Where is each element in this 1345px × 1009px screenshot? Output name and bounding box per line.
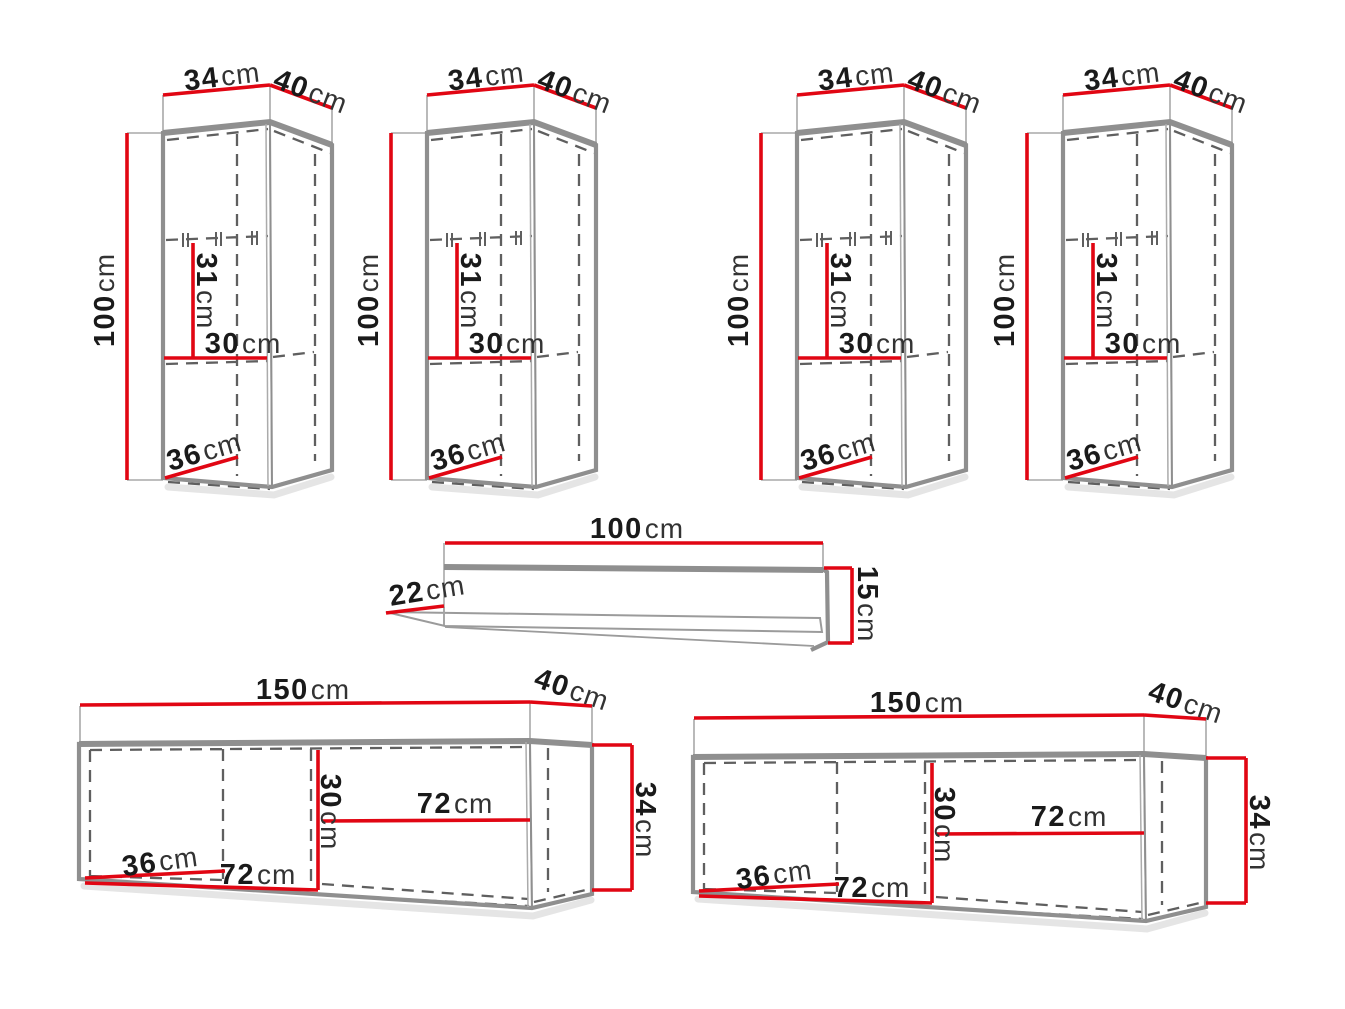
cabinet-side-face: [904, 122, 966, 487]
tall-cabinet-2: 34cm 40cm 100cm 31cm 30cm 36cm: [353, 56, 616, 495]
furniture-dimensions-diagram: 34cm 40cm 100cm 31cm 30cm 36cm 34cm 40cm…: [0, 0, 1345, 1009]
shelf-spacing-label: 31cm: [190, 253, 222, 330]
depth-label: 40cm: [533, 63, 616, 120]
extension-lines: [80, 703, 592, 744]
inner-width-right-dimension-line: [322, 820, 530, 821]
depth-label: 40cm: [1144, 675, 1227, 730]
height-label: 34cm: [1243, 795, 1275, 872]
height-label: 100cm: [989, 253, 1021, 347]
cabinet-side-face: [1144, 754, 1206, 921]
extension-lines: [444, 543, 823, 620]
shelf-top-edge: [444, 567, 823, 570]
wall-shelf: 100cm 22cm 15cm: [386, 513, 883, 650]
cabinet-side-face: [270, 122, 332, 487]
width-label: 34cm: [1082, 56, 1162, 97]
height-label: 100cm: [353, 253, 385, 347]
inner-width-label: 30cm: [205, 328, 282, 360]
inner-width-right-label: 72cm: [1031, 801, 1108, 833]
width-label: 34cm: [816, 56, 896, 97]
tall-cabinet-3: 34cm 40cm 100cm 31cm 30cm 36cm: [723, 56, 986, 495]
cabinet-side-face: [534, 122, 596, 487]
inner-width-bottom-label: 72cm: [834, 872, 911, 904]
height-label: 34cm: [629, 782, 661, 859]
width-label: 34cm: [182, 56, 262, 97]
tall-cabinet-1: 34cm 40cm 100cm 31cm 30cm 36cm: [89, 56, 352, 495]
height-label: 100cm: [723, 253, 755, 347]
shelf-board: [386, 612, 822, 632]
height-label: 100cm: [89, 253, 121, 347]
inner-width-label: 30cm: [839, 328, 916, 360]
inner-width-label: 30cm: [1105, 328, 1182, 360]
depth-label: 40cm: [1169, 63, 1252, 120]
height-dimension-line: [1206, 758, 1246, 903]
width-label: 150cm: [256, 674, 350, 706]
extension-lines: [694, 716, 1206, 757]
wide-cabinet-1: 150cm 40cm 34cm 30cm 72cm 36cm 72cm: [79, 662, 661, 916]
inner-width-bottom-label: 72cm: [220, 859, 297, 891]
height-dimension-line: [592, 745, 632, 890]
cabinet-side-face: [1170, 122, 1232, 487]
tall-cabinet-4: 34cm 40cm 100cm 31cm 30cm 36cm: [989, 56, 1252, 495]
shelf-spacing-label: 31cm: [824, 253, 856, 330]
height-label: 15cm: [851, 566, 883, 643]
cabinet-side-face: [530, 741, 592, 908]
wide-cabinet-2: 150cm 40cm 34cm 30cm 72cm 36cm 72cm: [693, 675, 1275, 929]
inner-height-label: 30cm: [314, 774, 346, 851]
width-label: 150cm: [870, 687, 964, 719]
depth-label: 40cm: [903, 63, 986, 120]
width-label: 34cm: [446, 56, 526, 97]
width-label: 100cm: [590, 513, 684, 545]
inner-width-right-label: 72cm: [417, 788, 494, 820]
depth-label: 40cm: [269, 63, 352, 120]
shelf-spacing-label: 31cm: [1090, 253, 1122, 330]
inner-width-label: 30cm: [469, 328, 546, 360]
inner-height-label: 30cm: [928, 787, 960, 864]
depth-label: 40cm: [530, 662, 613, 717]
diagram-canvas: 34cm 40cm 100cm 31cm 30cm 36cm 34cm 40cm…: [0, 0, 1345, 1009]
inner-width-right-dimension-line: [936, 833, 1144, 834]
shelf-spacing-label: 31cm: [454, 253, 486, 330]
shelf-side-panel: [811, 569, 828, 650]
